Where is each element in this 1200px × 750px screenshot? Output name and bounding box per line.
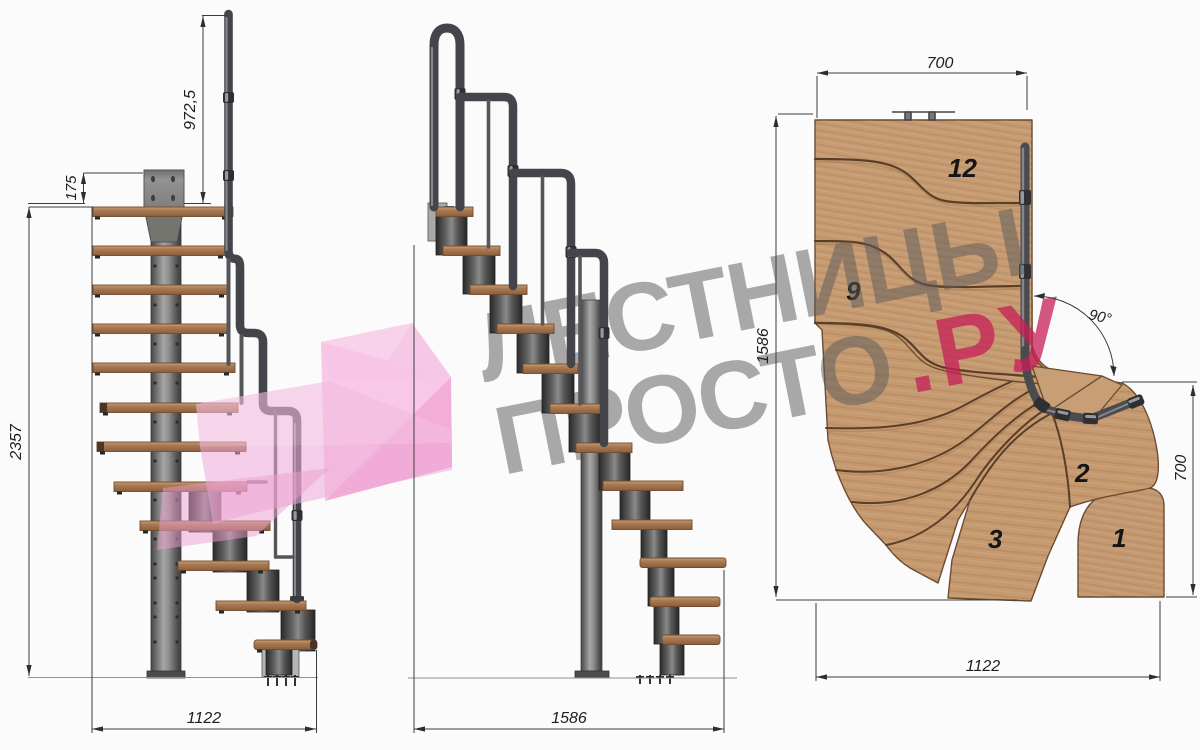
svg-text:1586: 1586: [755, 328, 772, 364]
svg-text:1122: 1122: [187, 710, 222, 727]
svg-text:1: 1: [1112, 523, 1126, 553]
svg-text:700: 700: [1173, 455, 1190, 482]
svg-text:3: 3: [988, 524, 1003, 554]
svg-text:12: 12: [948, 153, 977, 183]
svg-text:2: 2: [1074, 458, 1090, 488]
svg-text:1586: 1586: [551, 710, 587, 727]
svg-text:700: 700: [927, 55, 954, 72]
svg-text:972,5: 972,5: [182, 90, 199, 130]
svg-text:175: 175: [63, 175, 80, 201]
svg-text:2357: 2357: [8, 423, 25, 461]
svg-text:1122: 1122: [966, 658, 1001, 675]
